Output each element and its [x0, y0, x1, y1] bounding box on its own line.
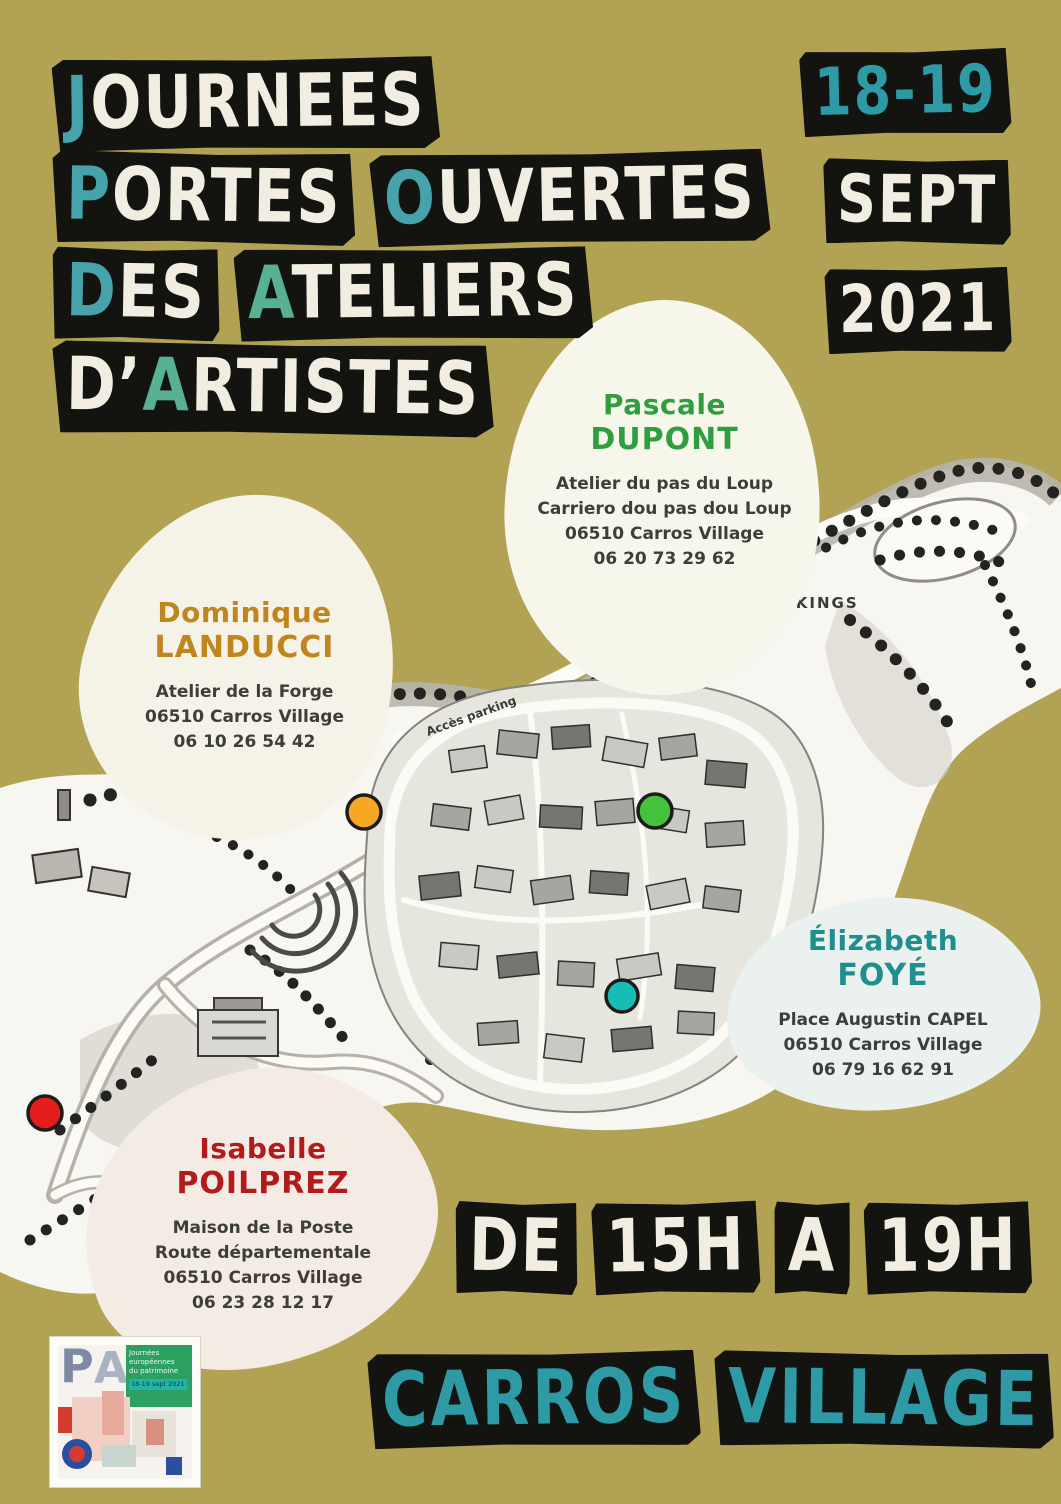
- title-word-ouvertes: OUVERTES: [369, 149, 770, 248]
- title-letters: RTISTES: [191, 343, 481, 432]
- date-year: 2021: [824, 267, 1011, 355]
- event-dates: 18-19 SEPT 2021: [800, 50, 1011, 377]
- artist-address: Atelier du pas du Loup Carriero dou pas …: [512, 472, 817, 572]
- artist-address: Maison de la Poste Route départementale …: [98, 1216, 428, 1316]
- date-days-line: 18-19: [800, 50, 1011, 135]
- address-line: 06510 Carros Village: [98, 1266, 428, 1291]
- phone-number: 06 10 26 54 42: [92, 730, 397, 755]
- artist-card-foye: Élizabeth FOYÉ Place Augustin CAPEL 0651…: [733, 924, 1033, 1083]
- title-word-des: DES: [51, 247, 221, 342]
- date-month-line: SEPT: [800, 159, 1011, 244]
- opening-hours: DE 15H A 19H: [455, 1202, 1025, 1294]
- address-line: 06510 Carros Village: [512, 522, 817, 547]
- marker-foye: [606, 980, 638, 1012]
- artist-first-name: Pascale: [512, 388, 817, 422]
- title-letters: ORTES: [111, 152, 342, 241]
- title-letter: O: [383, 156, 437, 242]
- patrimoine-logo-collage: P A Journées européennes du patrimoine 1…: [58, 1345, 192, 1479]
- logo-collage-block: [58, 1407, 72, 1433]
- artist-address: Place Augustin CAPEL 06510 Carros Villag…: [733, 1008, 1033, 1083]
- logo-collage-block: [166, 1457, 182, 1475]
- title-letter: D: [65, 248, 118, 334]
- badge-line: du patrimoine: [129, 1367, 189, 1376]
- address-line: Atelier de la Forge: [92, 680, 397, 705]
- title-letter: A: [142, 343, 191, 429]
- artist-card-dupont: Pascale DUPONT Atelier du pas du Loup Ca…: [512, 388, 817, 572]
- poster-title-line-3: DES ATELIERS: [52, 248, 602, 340]
- address-line: Carriero dou pas dou Loup: [512, 497, 817, 522]
- address-line: Maison de la Poste: [98, 1216, 428, 1241]
- marker-poilprez: [28, 1096, 62, 1130]
- address-line: Atelier du pas du Loup: [512, 472, 817, 497]
- marker-landucci: [347, 795, 381, 829]
- badge-dates: 18-19 sept 2021: [129, 1379, 187, 1390]
- title-letter: A: [248, 251, 293, 337]
- title-letters: UVERTES: [436, 150, 756, 241]
- location-word-carros: CARROS: [367, 1350, 701, 1450]
- hours-word-de: DE: [454, 1201, 578, 1295]
- marker-dupont: [638, 794, 672, 828]
- artist-first-name: Dominique: [92, 596, 397, 630]
- patrimoine-badge: Journées européennes du patrimoine 18-19…: [126, 1345, 192, 1407]
- title-letter: J: [66, 61, 91, 147]
- address-line: 06510 Carros Village: [733, 1033, 1033, 1058]
- title-word-portes: PORTES: [51, 150, 356, 246]
- artist-address: Atelier de la Forge 06510 Carros Village…: [92, 680, 397, 755]
- poster: { "poster": { "background_color": "#b2a2…: [0, 0, 1061, 1500]
- poster-title-line-4: D’ARTISTES: [52, 343, 503, 435]
- badge-line: européennes: [129, 1358, 189, 1367]
- phone-number: 06 23 28 12 17: [98, 1291, 428, 1316]
- title-letters: D’: [66, 342, 144, 428]
- phone-number: 06 20 73 29 62: [512, 547, 817, 572]
- artist-last-name: LANDUCCI: [92, 630, 397, 666]
- date-days: 18-19: [799, 48, 1011, 137]
- hours-word-15h: 15H: [591, 1201, 760, 1296]
- hours-word-19h: 19H: [864, 1201, 1033, 1294]
- logo-letter-a: A: [94, 1345, 128, 1394]
- patrimoine-logo: P A Journées européennes du patrimoine 1…: [50, 1337, 200, 1487]
- date-year-line: 2021: [800, 268, 1011, 353]
- poster-title-line-1: JOURNEES: [52, 58, 449, 150]
- artist-last-name: DUPONT: [512, 422, 817, 458]
- address-line: 06510 Carros Village: [92, 705, 397, 730]
- artist-first-name: Isabelle: [98, 1132, 428, 1166]
- artist-last-name: POILPREZ: [98, 1166, 428, 1202]
- logo-collage-ring: [62, 1439, 92, 1469]
- logo-collage-block: [102, 1445, 136, 1467]
- title-letter: P: [65, 151, 112, 237]
- date-month: SEPT: [822, 158, 1011, 245]
- address-line: Route départementale: [98, 1241, 428, 1266]
- poster-title-line-2: PORTES OUVERTES: [52, 152, 779, 244]
- event-location: CARROS VILLAGE: [368, 1352, 1028, 1447]
- title-letters: TELIERS: [291, 248, 579, 336]
- title-word-ateliers: ATELIERS: [234, 246, 594, 342]
- artist-card-poilprez: Isabelle POILPREZ Maison de la Poste Rou…: [98, 1132, 428, 1316]
- artist-first-name: Élizabeth: [733, 924, 1033, 958]
- logo-collage-block: [102, 1391, 124, 1435]
- logo-collage-block: [146, 1419, 164, 1445]
- title-word-journees: JOURNEES: [52, 56, 441, 152]
- title-letters: ES: [117, 249, 207, 336]
- location-word-village: VILLAGE: [714, 1350, 1055, 1449]
- address-line: Place Augustin CAPEL: [733, 1008, 1033, 1033]
- artist-last-name: FOYÉ: [733, 958, 1033, 994]
- badge-line: Journées: [129, 1349, 189, 1358]
- hours-word-a: A: [773, 1201, 851, 1294]
- title-word-dartistes: D’ARTISTES: [51, 340, 494, 437]
- logo-letter-p: P: [60, 1345, 94, 1393]
- title-letters: OURNEES: [90, 57, 426, 146]
- artist-card-landucci: Dominique LANDUCCI Atelier de la Forge 0…: [92, 596, 397, 755]
- phone-number: 06 79 16 62 91: [733, 1058, 1033, 1083]
